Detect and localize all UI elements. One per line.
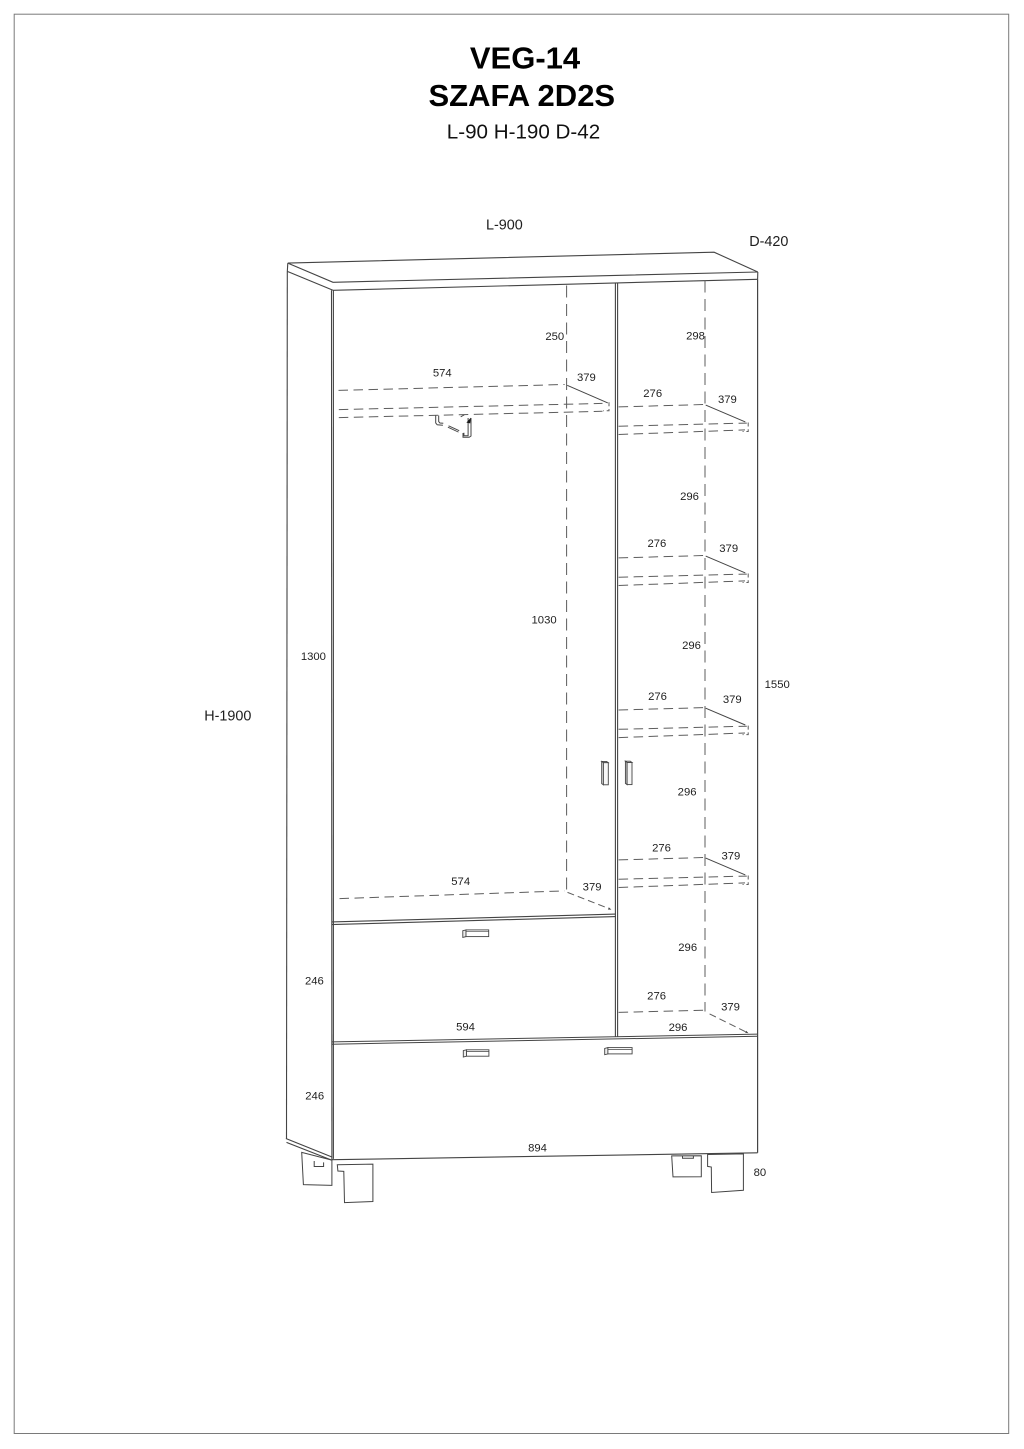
svg-text:246: 246 (305, 976, 324, 988)
svg-text:894: 894 (528, 1143, 547, 1155)
svg-text:276: 276 (643, 388, 662, 400)
svg-text:276: 276 (652, 843, 671, 855)
svg-text:379: 379 (577, 372, 596, 384)
svg-text:246: 246 (305, 1090, 324, 1102)
svg-text:379: 379 (721, 850, 740, 862)
svg-text:80: 80 (754, 1167, 767, 1179)
svg-text:296: 296 (680, 491, 699, 503)
svg-text:D-420: D-420 (749, 234, 788, 250)
svg-text:276: 276 (648, 691, 667, 703)
svg-text:379: 379 (721, 1001, 740, 1013)
svg-text:298: 298 (686, 331, 705, 343)
svg-text:L-90 H-190 D-42: L-90 H-190 D-42 (447, 121, 600, 144)
svg-text:574: 574 (451, 876, 470, 888)
svg-text:594: 594 (456, 1022, 475, 1034)
svg-text:296: 296 (678, 942, 697, 954)
svg-text:1550: 1550 (765, 679, 790, 691)
svg-text:296: 296 (678, 786, 697, 798)
svg-text:296: 296 (669, 1022, 688, 1034)
svg-text:276: 276 (647, 991, 666, 1003)
svg-text:296: 296 (682, 640, 701, 652)
svg-text:379: 379 (719, 543, 738, 555)
svg-text:250: 250 (545, 331, 564, 343)
svg-text:1030: 1030 (532, 615, 557, 627)
svg-text:379: 379 (718, 394, 737, 406)
svg-text:379: 379 (583, 881, 602, 893)
svg-text:276: 276 (647, 538, 666, 550)
svg-text:574: 574 (433, 368, 452, 380)
svg-text:H-1900: H-1900 (204, 709, 251, 725)
svg-text:L-900: L-900 (486, 217, 523, 233)
svg-text:SZAFA 2D2S: SZAFA 2D2S (428, 78, 615, 113)
svg-text:379: 379 (723, 694, 742, 706)
svg-text:VEG-14: VEG-14 (470, 40, 581, 75)
svg-text:1300: 1300 (301, 651, 326, 663)
